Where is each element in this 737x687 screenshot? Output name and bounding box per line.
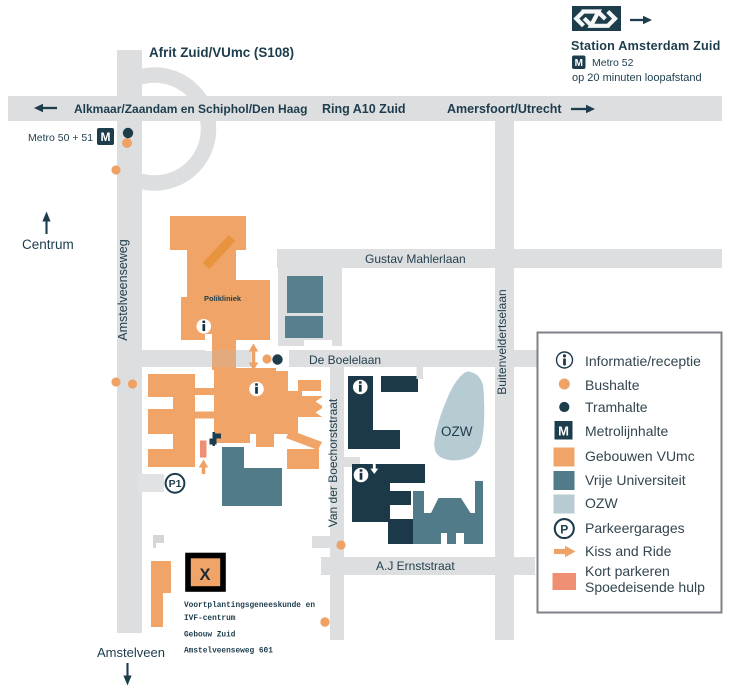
svg-text:Amstelveen: Amstelveen: [97, 645, 165, 660]
svg-text:Metrolijnhalte: Metrolijnhalte: [585, 423, 668, 439]
svg-text:Gebouwen VUmc: Gebouwen VUmc: [585, 448, 695, 464]
svg-text:Alkmaar/Zaandam en Schiphol/De: Alkmaar/Zaandam en Schiphol/Den Haag: [74, 102, 307, 116]
svg-text:Kiss and Ride: Kiss and Ride: [585, 543, 672, 559]
svg-text:Gebouw Zuid: Gebouw Zuid: [184, 632, 236, 640]
svg-text:Vrije Universiteit: Vrije Universiteit: [585, 472, 686, 488]
svg-text:op 20 minuten loopafstand: op 20 minuten loopafstand: [572, 72, 702, 84]
svg-text:P1: P1: [169, 478, 182, 490]
svg-text:Van der Boechorststraat: Van der Boechorststraat: [326, 398, 340, 527]
svg-text:Informatie/receptie: Informatie/receptie: [585, 353, 701, 369]
svg-text:M: M: [101, 130, 111, 144]
svg-text:Spoedeisende hulp: Spoedeisende hulp: [585, 579, 705, 595]
svg-text:X: X: [199, 566, 210, 584]
svg-text:Metro 50 + 51: Metro 50 + 51: [28, 132, 93, 144]
svg-text:M: M: [558, 424, 569, 439]
svg-text:Tramhalte: Tramhalte: [585, 399, 648, 415]
svg-text:Bushalte: Bushalte: [585, 377, 640, 393]
svg-text:Station Amsterdam Zuid: Station Amsterdam Zuid: [571, 39, 720, 53]
svg-text:Gustav Mahlerlaan: Gustav Mahlerlaan: [365, 252, 466, 266]
svg-text:IVF-centrum: IVF-centrum: [184, 615, 236, 623]
svg-text:Buitenveldertselaan: Buitenveldertselaan: [495, 289, 509, 394]
svg-text:Ring A10 Zuid: Ring A10 Zuid: [322, 102, 406, 116]
svg-text:De Boelelaan: De Boelelaan: [309, 353, 381, 367]
svg-text:Metro 52: Metro 52: [592, 57, 634, 69]
svg-text:M: M: [575, 58, 583, 69]
svg-text:OZW: OZW: [585, 495, 618, 511]
svg-text:Voortplantingsgeneeskunde en: Voortplantingsgeneeskunde en: [184, 602, 315, 610]
svg-text:OZW: OZW: [441, 424, 473, 439]
svg-text:Amstelveenseweg 601: Amstelveenseweg 601: [184, 648, 273, 656]
svg-text:Polikliniek: Polikliniek: [204, 294, 242, 303]
svg-text:Amstelveenseweg: Amstelveenseweg: [116, 239, 130, 340]
svg-text:A.J Ernststraat: A.J Ernststraat: [376, 559, 455, 573]
svg-text:Afrit Zuid/VUmc (S108): Afrit Zuid/VUmc (S108): [149, 45, 294, 60]
svg-text:Centrum: Centrum: [22, 237, 74, 252]
svg-text:P: P: [560, 522, 568, 536]
svg-text:Kort parkeren: Kort parkeren: [585, 563, 670, 579]
svg-text:Amersfoort/Utrecht: Amersfoort/Utrecht: [447, 102, 562, 116]
svg-text:Parkeergarages: Parkeergarages: [585, 520, 685, 536]
